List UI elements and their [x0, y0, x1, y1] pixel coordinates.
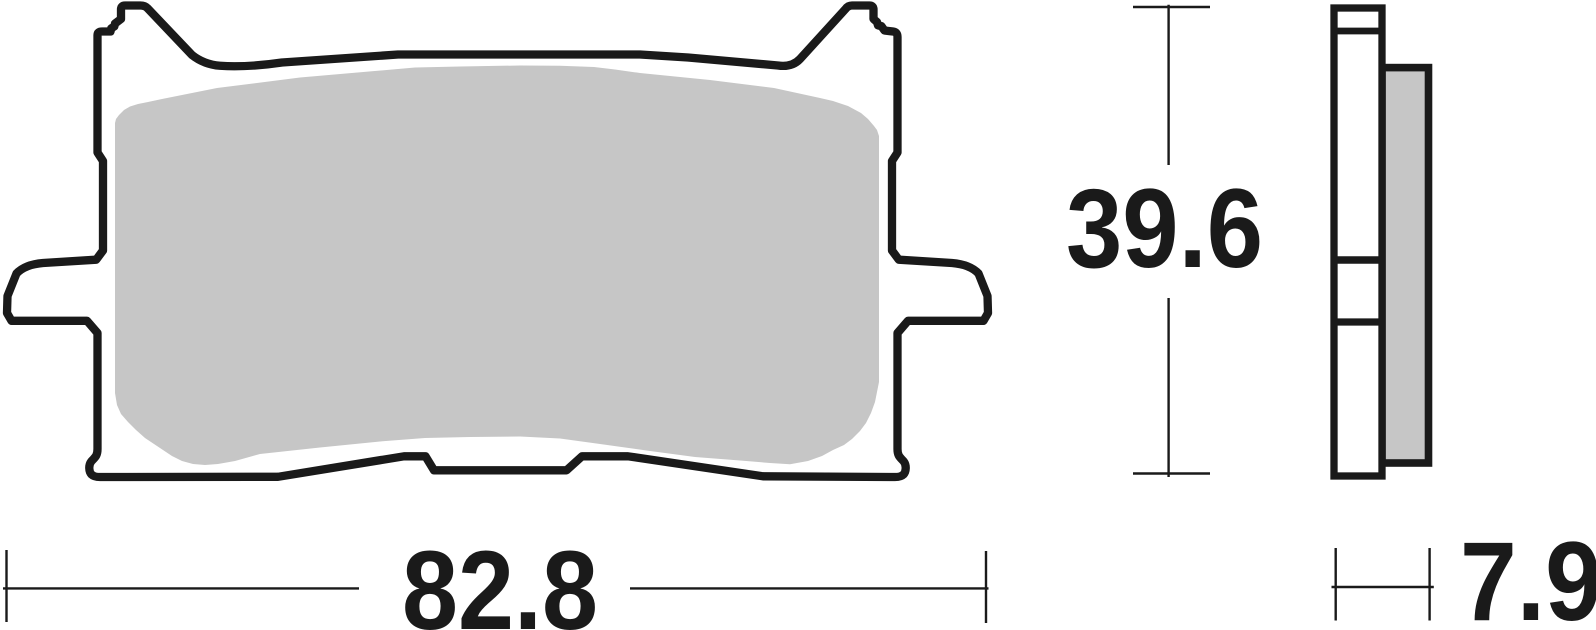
svg-text:39.6: 39.6: [1066, 166, 1263, 291]
svg-text:7.9: 7.9: [1460, 519, 1596, 630]
svg-text:82.8: 82.8: [402, 528, 598, 630]
